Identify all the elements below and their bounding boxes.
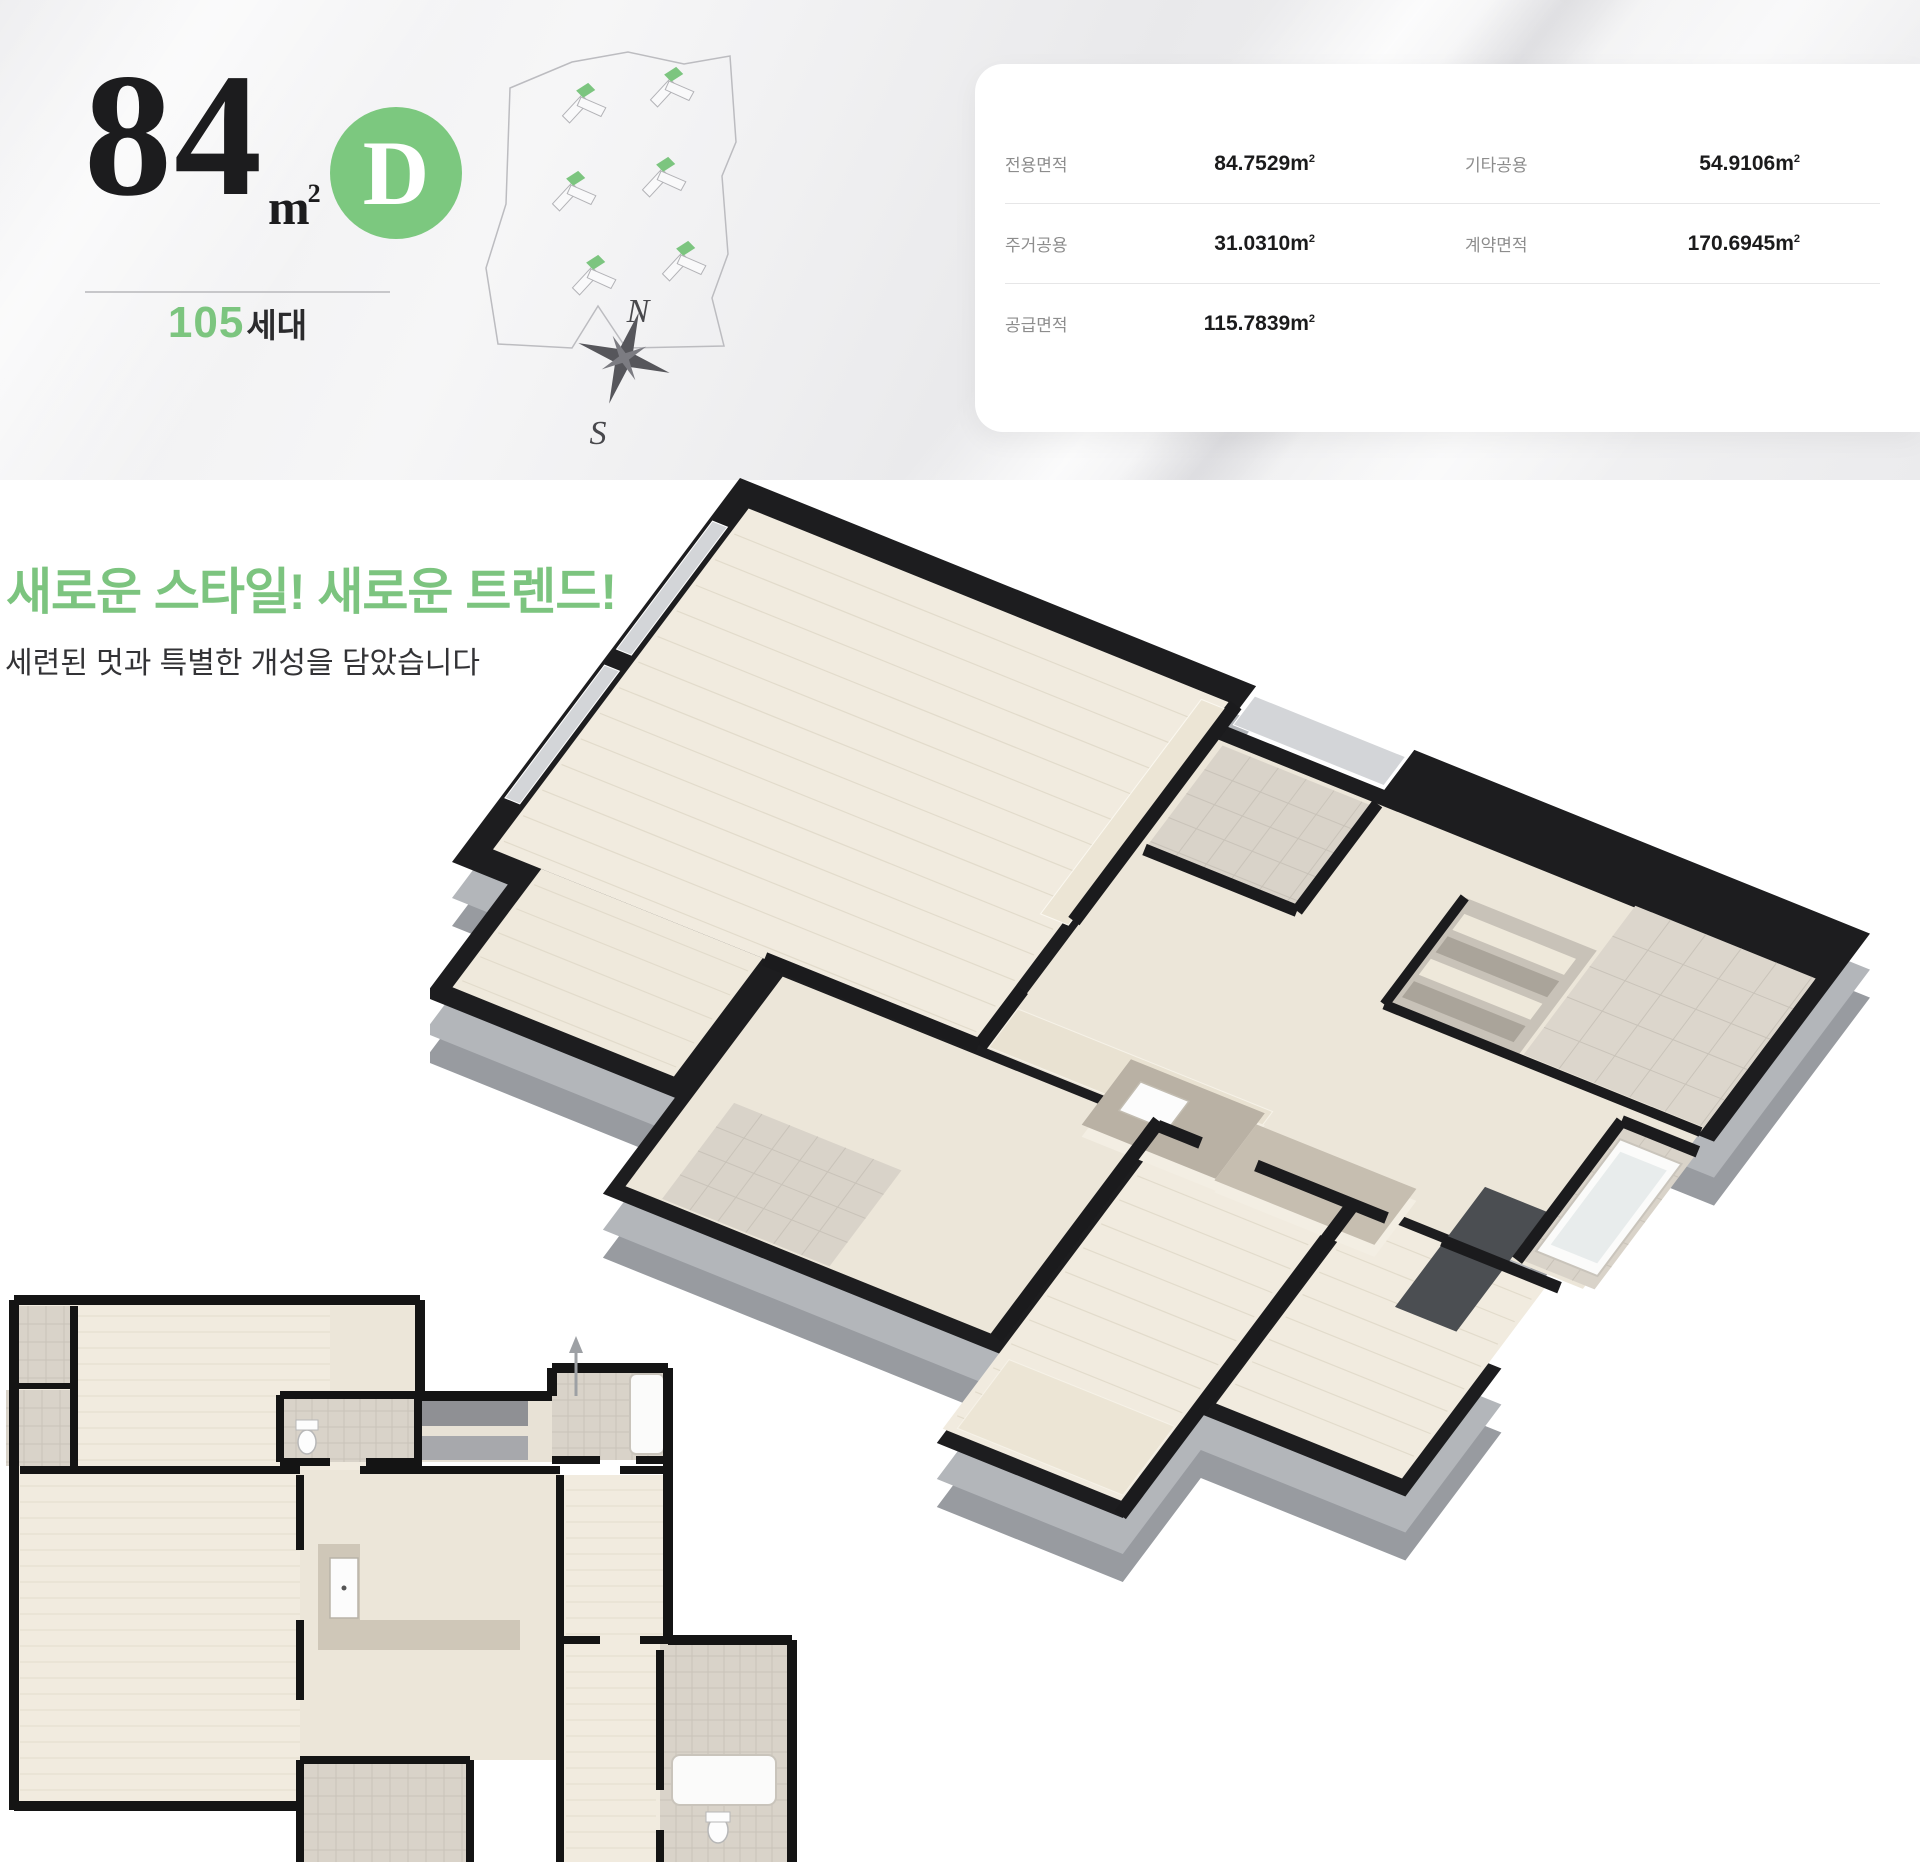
household-number: 105 <box>168 298 244 348</box>
unit-type-letter: D <box>363 127 429 219</box>
area-value: 170.6945m2 <box>1615 232 1800 256</box>
unit-area-unit: m2 <box>268 178 323 236</box>
area-label: 주거공용 <box>1005 231 1145 256</box>
unit-area-number: 84 <box>84 48 264 224</box>
site-building <box>568 253 617 296</box>
page: 84 m2 D 105 세대 N S 전용면적 84.7529m2 <box>0 0 1920 1862</box>
area-value: 54.9106m2 <box>1615 152 1800 176</box>
household-suffix: 세대 <box>246 299 307 347</box>
unit-type-badge: D <box>330 107 462 239</box>
site-building <box>658 239 707 282</box>
area-label: 계약면적 <box>1465 231 1615 256</box>
area-value: 31.0310m2 <box>1145 232 1315 256</box>
intro-subtitle: 세련된 멋과 특별한 개성을 담았습니다 <box>5 638 480 682</box>
site-building <box>638 155 687 198</box>
site-plan-map: N S <box>476 46 752 452</box>
table-row: 공급면적 115.7839m2 <box>1005 284 1880 363</box>
area-label: 공급면적 <box>1005 311 1145 336</box>
area-value: 115.7839m2 <box>1145 312 1315 336</box>
area-label: 전용면적 <box>1005 151 1145 176</box>
table-row: 주거공용 31.0310m2 계약면적 170.6945m2 <box>1005 204 1880 284</box>
site-building <box>646 65 695 108</box>
site-building <box>558 81 607 124</box>
site-building <box>548 169 597 212</box>
logo-divider <box>85 291 390 293</box>
compass-north-label: N <box>626 293 652 330</box>
area-label: 기타공용 <box>1465 151 1615 176</box>
floor-plan-2d <box>0 1290 800 1862</box>
household-count: 105 세대 <box>85 298 390 348</box>
compass-icon: N S <box>564 293 685 452</box>
site-boundary <box>486 52 736 348</box>
area-value: 84.7529m2 <box>1145 152 1315 176</box>
table-row: 전용면적 84.7529m2 기타공용 54.9106m2 <box>1005 124 1880 204</box>
area-info-card: 전용면적 84.7529m2 기타공용 54.9106m2 주거공용 31.03… <box>975 64 1920 432</box>
